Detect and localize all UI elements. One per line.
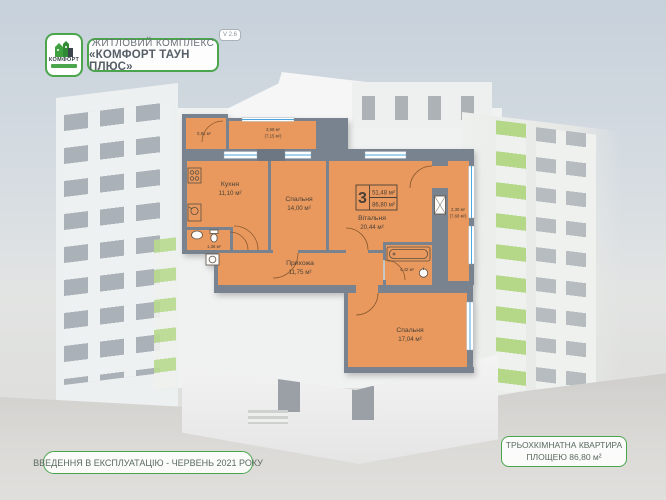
label-hallway-area: 11,75 м² (288, 269, 311, 276)
room-bathroom (385, 245, 432, 285)
room-hallway (218, 250, 383, 285)
label-kitchen-name: Кухня (221, 181, 240, 188)
label-bedroom1-area: 14,00 м² (287, 205, 311, 212)
floor-plan: 3 51,48 м² 86,80 м² 0,81 м² 3,58 м² (7,1… (166, 104, 478, 394)
label-kitchen-area: 11,10 м² (218, 190, 241, 197)
label-living-area: 20,44 м² (360, 224, 384, 231)
apartment-type: ТРЬОХКІМНАТНА КВАРТИРА (506, 440, 622, 451)
badge-total-area: 86,80 м² (372, 203, 395, 209)
building-right-green-balconies (496, 120, 526, 394)
apartment-summary-banner: ТРЬОХКІМНАТНА КВАРТИРА ПЛОЩЕЮ 86,80 м² (501, 436, 627, 467)
building-left (56, 83, 178, 426)
label-bedroom2-area: 17,04 м² (398, 336, 422, 343)
vent-shaft (435, 196, 446, 214)
building-right-windows (536, 127, 596, 398)
label-balcony-right-area: 2,30 м² (451, 207, 466, 212)
label-living-name: Вітальня (358, 214, 386, 222)
label-balcony-top-area: 3,58 м² (266, 127, 281, 132)
toilet-icon (210, 230, 218, 242)
label-hallway-name: Прихожа (286, 260, 314, 267)
logo: КОМФОРТ (45, 33, 83, 77)
label-balcony-top-area-alt: (7,15 м²) (265, 134, 282, 139)
logo-buildings-icon (52, 38, 76, 57)
complex-title: ЖИТЛОВИЙ КОМПЛЕКС «КОМФОРТ ТАУН ПЛЮС» (87, 38, 219, 72)
badge-rooms-count: 3 (358, 190, 367, 207)
label-bedroom1-name: Спальня (285, 196, 313, 203)
commissioning-banner: ВВЕДЕННЯ В ЕКСПЛУАТАЦІЮ - ЧЕРВЕНЬ 2021 Р… (43, 451, 253, 474)
logo-text: КОМФОРТ (47, 57, 81, 63)
wc-sink-icon (192, 231, 203, 239)
logo-green-bar (51, 64, 77, 68)
label-bathroom-area: 4,42 м² (400, 267, 415, 272)
apartment-total-area: ПЛОЩЕЮ 86,80 м² (526, 452, 601, 463)
title-line1: ЖИТЛОВИЙ КОМПЛЕКС (92, 38, 214, 49)
label-storage-area: 0,81 м² (197, 131, 212, 136)
badge-living-area: 51,48 м² (372, 191, 395, 197)
label-wc-area: 1,36 м² (207, 244, 222, 249)
page: КОМФОРТ ЖИТЛОВИЙ КОМПЛЕКС «КОМФОРТ ТАУН … (0, 0, 666, 500)
label-balcony-right-area-alt: (7,68 м²) (450, 214, 467, 219)
entrance-steps (248, 410, 288, 424)
title-line2: «КОМФОРТ ТАУН ПЛЮС» (89, 49, 217, 73)
washing-machine-icon (206, 254, 219, 265)
label-bedroom2-name: Спальня (396, 327, 424, 334)
version-badge: V 2.6 (219, 29, 241, 41)
